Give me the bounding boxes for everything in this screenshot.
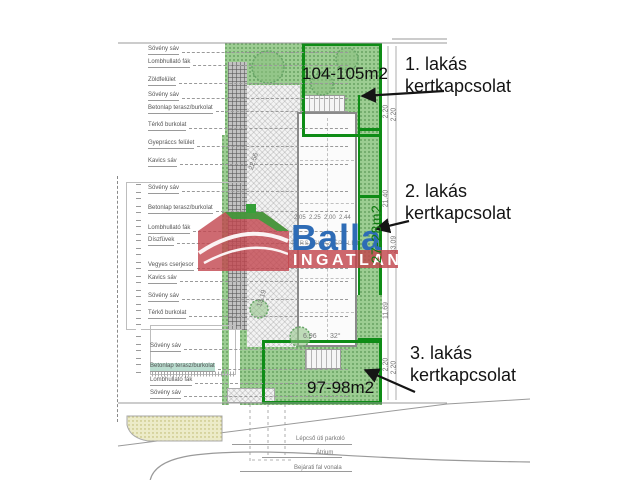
callout-line: 1. lakás — [405, 53, 511, 75]
callout-flat-3: 3. lakás kertkapcsolat — [410, 342, 516, 386]
callout-flat-1: 1. lakás kertkapcsolat — [405, 53, 511, 97]
garden3-area-label: 97-98m2 — [307, 378, 374, 398]
site-plan-image: Sövény sáv Lombhullató fák Zöldfelület S… — [0, 0, 640, 480]
garden1-area-label: 104-105m2 — [302, 64, 388, 84]
callout-line: kertkapcsolat — [405, 202, 511, 224]
callout-line: kertkapcsolat — [405, 75, 511, 97]
logo-house-icon — [198, 212, 289, 271]
callout-line: kertkapcsolat — [410, 364, 516, 386]
callout-flat-2: 2. lakás kertkapcsolat — [405, 180, 511, 224]
callout-line: 2. lakás — [405, 180, 511, 202]
garden2-area-label: 27-28m2 — [368, 194, 384, 274]
logo-chimney-icon — [246, 204, 256, 213]
callout-line: 3. lakás — [410, 342, 516, 364]
